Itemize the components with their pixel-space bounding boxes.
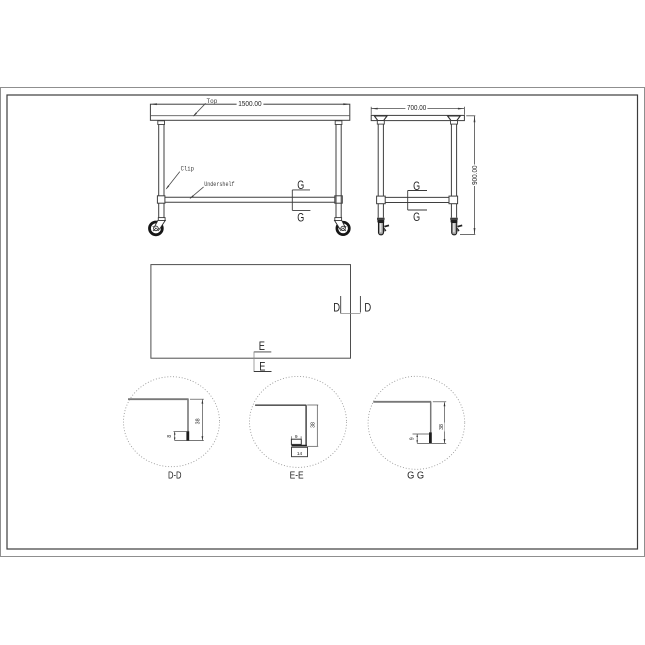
svg-text:Clip: Clip — [181, 166, 195, 173]
svg-text:D: D — [333, 300, 340, 314]
svg-text:700.00: 700.00 — [407, 103, 426, 112]
svg-text:E: E — [259, 360, 265, 374]
svg-text:G: G — [297, 211, 304, 225]
svg-text:G G: G G — [407, 470, 424, 481]
svg-text:D: D — [364, 300, 371, 314]
svg-text:900.00: 900.00 — [470, 166, 479, 185]
svg-text:14: 14 — [297, 451, 303, 457]
svg-text:1500.00: 1500.00 — [238, 99, 261, 108]
svg-text:E: E — [259, 339, 265, 353]
svg-text:D-D: D-D — [168, 470, 182, 481]
svg-text:Undershelf: Undershelf — [204, 181, 235, 188]
svg-text:38: 38 — [310, 422, 316, 428]
svg-text:8: 8 — [167, 435, 173, 438]
svg-text:9: 9 — [410, 437, 416, 440]
svg-text:Top: Top — [207, 98, 218, 105]
svg-text:38: 38 — [439, 424, 445, 430]
svg-text:E-E: E-E — [290, 470, 304, 481]
svg-text:38: 38 — [195, 418, 201, 424]
svg-text:9: 9 — [295, 434, 298, 440]
svg-text:G: G — [413, 210, 420, 224]
